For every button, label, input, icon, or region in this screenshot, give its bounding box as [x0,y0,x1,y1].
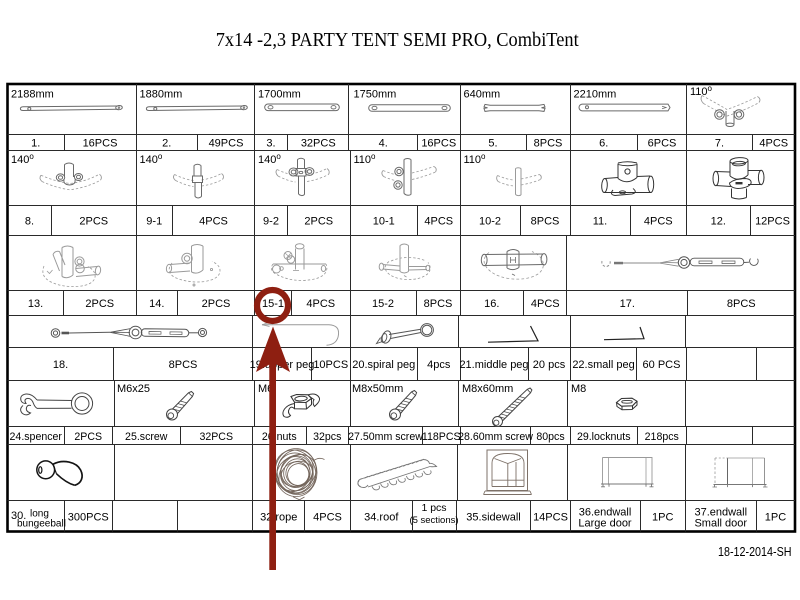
svg-text:16PCS: 16PCS [83,138,118,150]
svg-text:24.spencer: 24.spencer [10,431,63,443]
svg-text:17.: 17. [620,298,635,310]
svg-text:15-2: 15-2 [372,298,394,310]
svg-text:4pcs: 4pcs [427,359,451,371]
svg-text:27.50mm screw: 27.50mm screw [348,431,423,443]
svg-text:9-1: 9-1 [146,216,162,228]
svg-text:12PCS: 12PCS [755,216,790,228]
svg-text:10PCS: 10PCS [313,359,348,371]
svg-text:21.middle peg: 21.middle peg [459,359,528,371]
svg-text:13.: 13. [28,298,43,310]
svg-text:7.: 7. [715,138,724,150]
svg-text:2PCS: 2PCS [85,298,114,310]
svg-text:2.: 2. [162,138,171,150]
svg-text:14PCS: 14PCS [533,511,568,523]
svg-text:1700mm: 1700mm [258,89,301,101]
svg-text:28.60mm screw: 28.60mm screw [458,431,533,443]
svg-text:15-1: 15-1 [262,298,284,310]
svg-text:7x14 -2,3 PARTY TENT SEMI PRO,: 7x14 -2,3 PARTY TENT SEMI PRO, CombiTent [216,29,579,51]
svg-text:4.: 4. [379,138,388,150]
svg-text:26.nuts: 26.nuts [262,431,297,443]
svg-text:2PCS: 2PCS [202,298,231,310]
svg-text:14.: 14. [149,298,164,310]
svg-text:2PCS: 2PCS [79,216,108,228]
svg-text:8PCS: 8PCS [534,138,563,150]
svg-text:29.locknuts: 29.locknuts [577,431,631,443]
svg-text:8.: 8. [25,216,34,228]
svg-text:8PCS: 8PCS [531,216,560,228]
svg-text:8PCS: 8PCS [169,359,198,371]
svg-text:M8x50mm: M8x50mm [352,383,403,395]
svg-text:218pcs: 218pcs [645,431,679,443]
svg-text:2PCS: 2PCS [74,431,102,443]
svg-text:18.: 18. [53,359,68,371]
svg-text:5.: 5. [488,138,497,150]
svg-text:640mm: 640mm [464,89,501,101]
svg-text:4PCS: 4PCS [199,216,228,228]
svg-text:6PCS: 6PCS [648,138,677,150]
svg-text:Large door: Large door [578,517,632,529]
svg-text:34.roof: 34.roof [364,511,399,523]
svg-text:2210mm: 2210mm [574,89,617,101]
svg-text:4PCS: 4PCS [759,138,788,150]
svg-text:4PCS: 4PCS [424,216,453,228]
svg-text:1880mm: 1880mm [140,89,183,101]
svg-text:M8x60mm: M8x60mm [462,383,513,395]
svg-text:2PCS: 2PCS [304,216,333,228]
svg-text:20 pcs: 20 pcs [533,359,566,371]
svg-text:32PCS: 32PCS [301,138,336,150]
svg-text:11.: 11. [593,216,607,228]
svg-text:80pcs: 80pcs [536,431,564,443]
svg-text:49PCS: 49PCS [209,138,244,150]
svg-text:32.rope: 32.rope [260,511,297,523]
svg-text:16.: 16. [484,298,499,310]
svg-text:1750mm: 1750mm [354,89,397,101]
svg-text:60 PCS: 60 PCS [643,359,681,371]
svg-text:bungeeball: bungeeball [17,519,66,530]
svg-text:1PC: 1PC [652,511,673,523]
svg-text:16PCS: 16PCS [421,138,456,150]
svg-text:35.sidewall: 35.sidewall [466,511,520,523]
svg-text:2188mm: 2188mm [11,89,54,101]
svg-text:10-1: 10-1 [373,216,395,228]
svg-text:8PCS: 8PCS [424,298,453,310]
svg-text:1PC: 1PC [765,511,786,523]
svg-text:10-2: 10-2 [479,216,501,228]
svg-text:32pcs: 32pcs [313,431,341,443]
svg-text:Small door: Small door [694,517,747,529]
svg-text:18-12-2014-SH: 18-12-2014-SH [718,545,792,559]
svg-text:M8: M8 [571,383,586,395]
svg-text:12.: 12. [711,216,726,228]
svg-text:4PCS: 4PCS [531,298,560,310]
svg-text:4PCS: 4PCS [313,511,342,523]
svg-text:9-2: 9-2 [263,216,279,228]
svg-text:M6x25: M6x25 [117,383,150,395]
svg-text:118PCS: 118PCS [422,431,461,443]
svg-text:1.: 1. [31,138,40,150]
svg-text:6.: 6. [599,138,608,150]
svg-text:20.spiral peg: 20.spiral peg [352,359,415,371]
svg-text:22.small peg: 22.small peg [572,359,634,371]
svg-text:300PCS: 300PCS [68,511,109,523]
svg-text:3.: 3. [266,138,275,150]
svg-text:1 pcs: 1 pcs [421,502,446,514]
svg-text:4PCS: 4PCS [306,298,335,310]
svg-text:4PCS: 4PCS [644,216,673,228]
svg-text:25.screw: 25.screw [125,431,168,443]
svg-text:32PCS: 32PCS [199,431,233,443]
svg-text:(5 sections): (5 sections) [409,515,458,526]
svg-text:8PCS: 8PCS [727,298,756,310]
